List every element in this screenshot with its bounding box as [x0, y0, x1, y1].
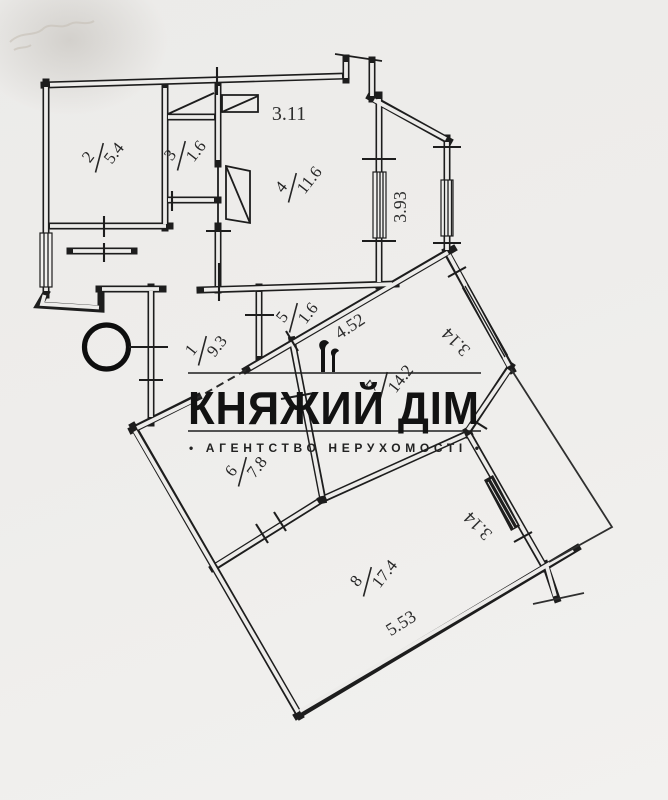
- room-label-2: 2 5.4: [76, 127, 128, 180]
- room-4-number: 4: [271, 177, 292, 196]
- room-label-4: 4 11.6: [269, 152, 326, 210]
- room-1-area: 9.3: [203, 332, 231, 360]
- room-8-area: 17.4: [368, 556, 402, 592]
- plan-details: [168, 54, 612, 604]
- dimension-3-14-room7: 3.14: [438, 324, 474, 360]
- dimension-3-93: 3.93: [390, 191, 410, 223]
- closet-door-line: [168, 93, 214, 114]
- entrance-door-symbol: [85, 325, 169, 369]
- window-left-wall: [40, 233, 52, 287]
- dimension-3-14-room8: 3.14: [460, 508, 496, 544]
- dimension-3-11: 3.11: [272, 103, 306, 125]
- window-room4: [373, 172, 386, 238]
- window-room8-dark: [484, 475, 520, 531]
- room-label-1: 1 9.3: [179, 321, 231, 373]
- room-8-number: 8: [346, 572, 366, 590]
- handwriting-artifact: [10, 21, 94, 50]
- room-1-number: 1: [181, 341, 201, 359]
- entrance-circle: [85, 325, 129, 369]
- room-5-number: 5: [272, 308, 292, 326]
- room-4-area: 11.6: [293, 163, 326, 198]
- room-3-area: 1.6: [182, 137, 210, 165]
- room-6-number: 6: [221, 462, 241, 480]
- room-2-number: 2: [78, 148, 98, 166]
- watermark-logo: КНЯЖИЙ ДІМ • АГЕНТСТВО НЕРУХОМОСТІ •: [188, 340, 481, 455]
- watermark-subtitle: • АГЕНТСТВО НЕРУХОМОСТІ •: [189, 441, 479, 455]
- room-6-area: 7.8: [243, 453, 271, 481]
- building-icon: [319, 340, 339, 372]
- window-right-exterior: [441, 180, 453, 236]
- dimension-5-53: 5.53: [382, 606, 419, 640]
- vent-shaft: [222, 95, 258, 112]
- floor-plan-drawing: 2 5.4 3 1.6 4 11.6 5 1.6 1: [0, 0, 668, 800]
- watermark-title: КНЯЖИЙ ДІМ: [188, 382, 480, 434]
- room-label-8: 8 17.4: [344, 545, 402, 604]
- room-labels: 2 5.4 3 1.6 4 11.6 5 1.6 1: [76, 126, 417, 604]
- room-5-area: 1.6: [294, 299, 322, 327]
- scanned-floor-plan-page: 2 5.4 3 1.6 4 11.6 5 1.6 1: [0, 0, 668, 800]
- door-leaf-room4: [226, 166, 250, 223]
- room-2-area: 5.4: [100, 138, 128, 167]
